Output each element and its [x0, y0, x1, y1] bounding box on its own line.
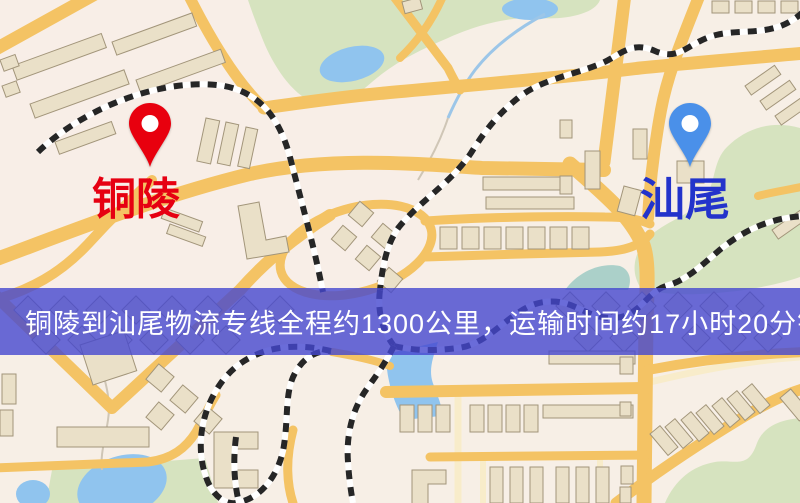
destination-city-label: 汕尾: [640, 177, 730, 222]
destination-marker[interactable]: [665, 100, 715, 168]
map-viewport[interactable]: 铜陵 汕尾 铜陵到汕尾物流专线全程约1300公里，运输时间约17小时20分钟.: [0, 0, 800, 503]
route-info-banner: 铜陵到汕尾物流专线全程约1300公里，运输时间约17小时20分钟.: [0, 288, 800, 355]
map-canvas: [0, 0, 800, 503]
origin-city-label: 铜陵: [92, 178, 180, 222]
red-location-pin-icon: [125, 100, 175, 168]
blue-location-pin-icon: [665, 100, 715, 168]
route-info-text: 铜陵到汕尾物流专线全程约1300公里，运输时间约17小时20分钟.: [0, 302, 800, 341]
origin-marker[interactable]: [125, 100, 175, 168]
